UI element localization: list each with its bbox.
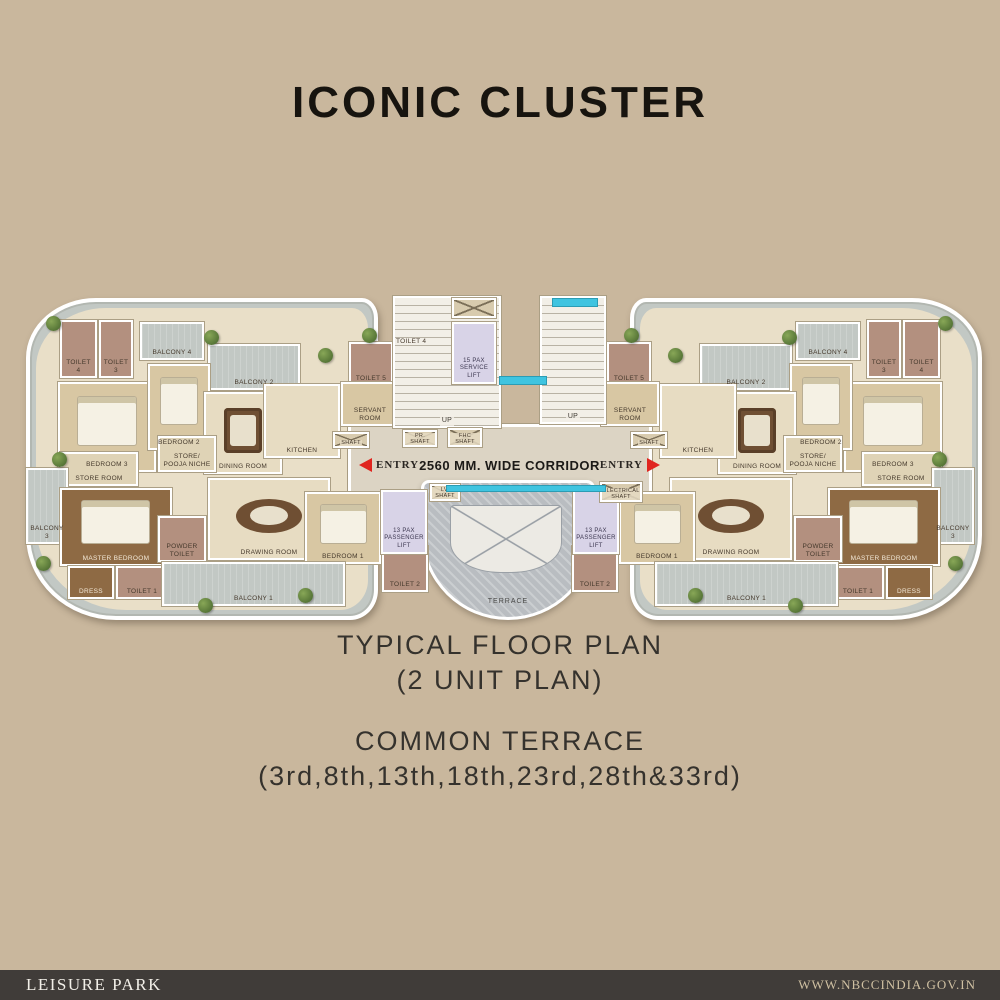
tree-icon (298, 588, 313, 603)
room-label: BEDROOM 2 (156, 437, 202, 449)
room-fhc-shaft: FHC SHAFT (448, 428, 482, 447)
room-label: TOILET 2 (578, 579, 612, 591)
bed-icon (802, 377, 840, 425)
caption-common-terrace: COMMON TERRACE (0, 724, 1000, 759)
room-shaft: SHAFT (631, 432, 667, 448)
room-dress: DRESS (886, 566, 932, 599)
room-bedroom-1: BEDROOM 1 (619, 492, 695, 564)
room-label: MASTER BEDROOM (81, 553, 152, 565)
room-label: TOILET 2 (388, 579, 422, 591)
room-servant-room: SERVANT ROOM (601, 382, 659, 426)
room-label: KITCHEN (285, 445, 320, 457)
oval-icon (698, 499, 764, 533)
terrace-label: TERRACE (424, 598, 592, 605)
room-shaft: SHAFT (333, 432, 369, 448)
room-label: DRAWING ROOM (239, 547, 300, 559)
tree-icon (52, 452, 67, 467)
room-label: POWDER TOILET (796, 541, 840, 560)
entry-left: ENTRY (359, 458, 419, 472)
bed-icon (320, 504, 367, 544)
tree-icon (362, 328, 377, 343)
room-powder-toilet: POWDER TOILET (158, 516, 206, 562)
room-label: TOILET 3 (101, 357, 131, 376)
room-toilet-5: TOILET 5 (607, 342, 651, 386)
tree-icon (36, 556, 51, 571)
room-label: TOILET 1 (841, 586, 875, 598)
room-label: BALCONY 4 (806, 347, 849, 359)
room-label: BALCONY 4 (150, 347, 193, 359)
bed-icon (634, 504, 681, 544)
room-label: BEDROOM 1 (634, 551, 680, 563)
room-servant-room: SERVANT ROOM (341, 382, 399, 426)
room-balcony-1: BALCONY 1 (162, 562, 345, 606)
room-13-pax-passenger-lift: 13 PAX PASSENGER LIFT (381, 490, 427, 554)
room-label: TOILET 5 (354, 373, 388, 385)
tree-icon (198, 598, 213, 613)
room-kitchen: KITCHEN (660, 384, 736, 458)
room-up: UP (540, 296, 606, 424)
entry-arrow-left-icon (359, 458, 372, 472)
caption-block: TYPICAL FLOOR PLAN (2 UNIT PLAN) COMMON … (0, 628, 1000, 794)
room-dress: DRESS (68, 566, 114, 599)
room-label: TOILET 1 (125, 586, 159, 598)
room-label: TOILET 3 (869, 357, 899, 376)
table-icon (738, 408, 776, 453)
room-toilet-1: TOILET 1 (116, 566, 168, 599)
room-balcony-4: BALCONY 4 (140, 322, 204, 360)
room-toilet-1: TOILET 1 (832, 566, 884, 599)
terrace-canopy (450, 505, 562, 573)
oval-icon (236, 499, 302, 533)
bed-icon (77, 396, 137, 446)
water-strip (447, 486, 605, 491)
footer-bar: LEISURE PARK WWW.NBCCINDIA.GOV.IN (0, 970, 1000, 1000)
room-label: TOILET 4 (62, 357, 95, 376)
tree-icon (668, 348, 683, 363)
room-label: BEDROOM 1 (320, 551, 366, 563)
room-toilet-5: TOILET 5 (349, 342, 393, 386)
room-label: BALCONY 2 (232, 377, 275, 389)
room-bedroom-1: BEDROOM 1 (305, 492, 381, 564)
room-powder-toilet: POWDER TOILET (794, 516, 842, 562)
room-master-bedroom: MASTER BEDROOM (828, 488, 940, 566)
caption-unit-plan: (2 UNIT PLAN) (0, 663, 1000, 698)
bed-icon (81, 500, 150, 543)
stair-toilet-label: TOILET 4 (396, 338, 426, 345)
room-label: POWDER TOILET (160, 541, 204, 560)
room-balcony-4: BALCONY 4 (796, 322, 860, 360)
room-label: STORE/ POOJA NICHE (786, 451, 840, 470)
room-label: DRESS (895, 586, 923, 598)
room-toilet-4: TOILET 4 (903, 320, 940, 378)
bed-icon (160, 377, 198, 425)
caption-floor-list: (3rd,8th,13th,18th,23rd,28th&33rd) (0, 759, 1000, 794)
tree-icon (788, 598, 803, 613)
room-label: BEDROOM 2 (798, 437, 844, 449)
tree-icon (782, 330, 797, 345)
corridor-width-label: 2560 MM. WIDE CORRIDOR (419, 458, 600, 473)
room-label: FHC SHAFT (450, 433, 480, 445)
room-label: STORE/ POOJA NICHE (160, 451, 214, 470)
room-label: DINING ROOM (217, 461, 269, 473)
room-kitchen: KITCHEN (264, 384, 340, 458)
room-label: DRESS (77, 586, 105, 598)
project-name: LEISURE PARK (26, 975, 162, 995)
room-15-pax-service-lift: 15 PAX SERVICE LIFT (452, 322, 496, 384)
bed-icon (849, 500, 918, 543)
website-url: WWW.NBCCINDIA.GOV.IN (798, 977, 976, 993)
room-label: BALCONY 3 (934, 523, 972, 542)
room- (452, 298, 496, 318)
room-bedroom-2: BEDROOM 2 (790, 364, 852, 450)
tree-icon (204, 330, 219, 345)
page-title: ICONIC CLUSTER (0, 78, 1000, 128)
caption-typical-floor-plan: TYPICAL FLOOR PLAN (0, 628, 1000, 663)
room-label: UP (566, 411, 580, 423)
tree-icon (46, 316, 61, 331)
bed-icon (863, 396, 923, 446)
page: ICONIC CLUSTER ENTRY 2560 MM. WIDE CORRI… (0, 0, 1000, 1000)
tree-icon (318, 348, 333, 363)
entry-right-label: ENTRY (600, 459, 643, 471)
room-label: ELECTRICAL SHAFT (602, 488, 641, 500)
room-label: SERVANT ROOM (603, 405, 657, 424)
room-label: 15 PAX SERVICE LIFT (454, 356, 494, 383)
room-toilet-4: TOILET 4 (60, 320, 97, 378)
room-label: BALCONY 3 (28, 523, 66, 542)
room-label: 13 PAX PASSENGER LIFT (574, 526, 618, 553)
room-balcony-1: BALCONY 1 (655, 562, 838, 606)
room-label: DINING ROOM (731, 461, 783, 473)
room-label: SHAFT (638, 440, 660, 446)
entry-arrow-right-icon (647, 458, 660, 472)
room-label: STORE ROOM (73, 473, 124, 485)
common-terrace: TERRACE (421, 480, 595, 620)
tree-icon (688, 588, 703, 603)
tree-icon (932, 452, 947, 467)
table-icon (224, 408, 262, 453)
entry-left-label: ENTRY (376, 459, 419, 471)
room-bedroom-2: BEDROOM 2 (148, 364, 210, 450)
room-label: DRAWING ROOM (701, 547, 762, 559)
room-electrical-shaft: ELECTRICAL SHAFT (600, 482, 642, 502)
tree-icon (938, 316, 953, 331)
room-label: UP (440, 415, 454, 427)
room-label: PR. SHAFT (405, 433, 435, 445)
room-toilet-3: TOILET 3 (867, 320, 901, 378)
room-label: TOILET 5 (612, 373, 646, 385)
room-label: STORE ROOM (875, 473, 926, 485)
room-label: BEDROOM 3 (870, 459, 916, 471)
room-label: KITCHEN (681, 445, 716, 457)
water-strip (553, 299, 597, 306)
room-label: 13 PAX PASSENGER LIFT (382, 526, 426, 553)
entry-right: ENTRY (600, 458, 660, 472)
room-toilet-3: TOILET 3 (99, 320, 133, 378)
room-master-bedroom: MASTER BEDROOM (60, 488, 172, 566)
room-label: SERVANT ROOM (343, 405, 397, 424)
water-strip (500, 377, 546, 384)
tree-icon (948, 556, 963, 571)
room-label: BEDROOM 3 (84, 459, 130, 471)
room-pr-shaft: PR. SHAFT (403, 430, 437, 447)
room-label: TOILET 4 (905, 357, 938, 376)
room-label: BALCONY 1 (725, 593, 768, 605)
room-label: BALCONY 2 (724, 377, 767, 389)
room-label: BALCONY 1 (232, 593, 275, 605)
tree-icon (624, 328, 639, 343)
room-label: SHAFT (340, 440, 362, 446)
room-label: MASTER BEDROOM (849, 553, 920, 565)
